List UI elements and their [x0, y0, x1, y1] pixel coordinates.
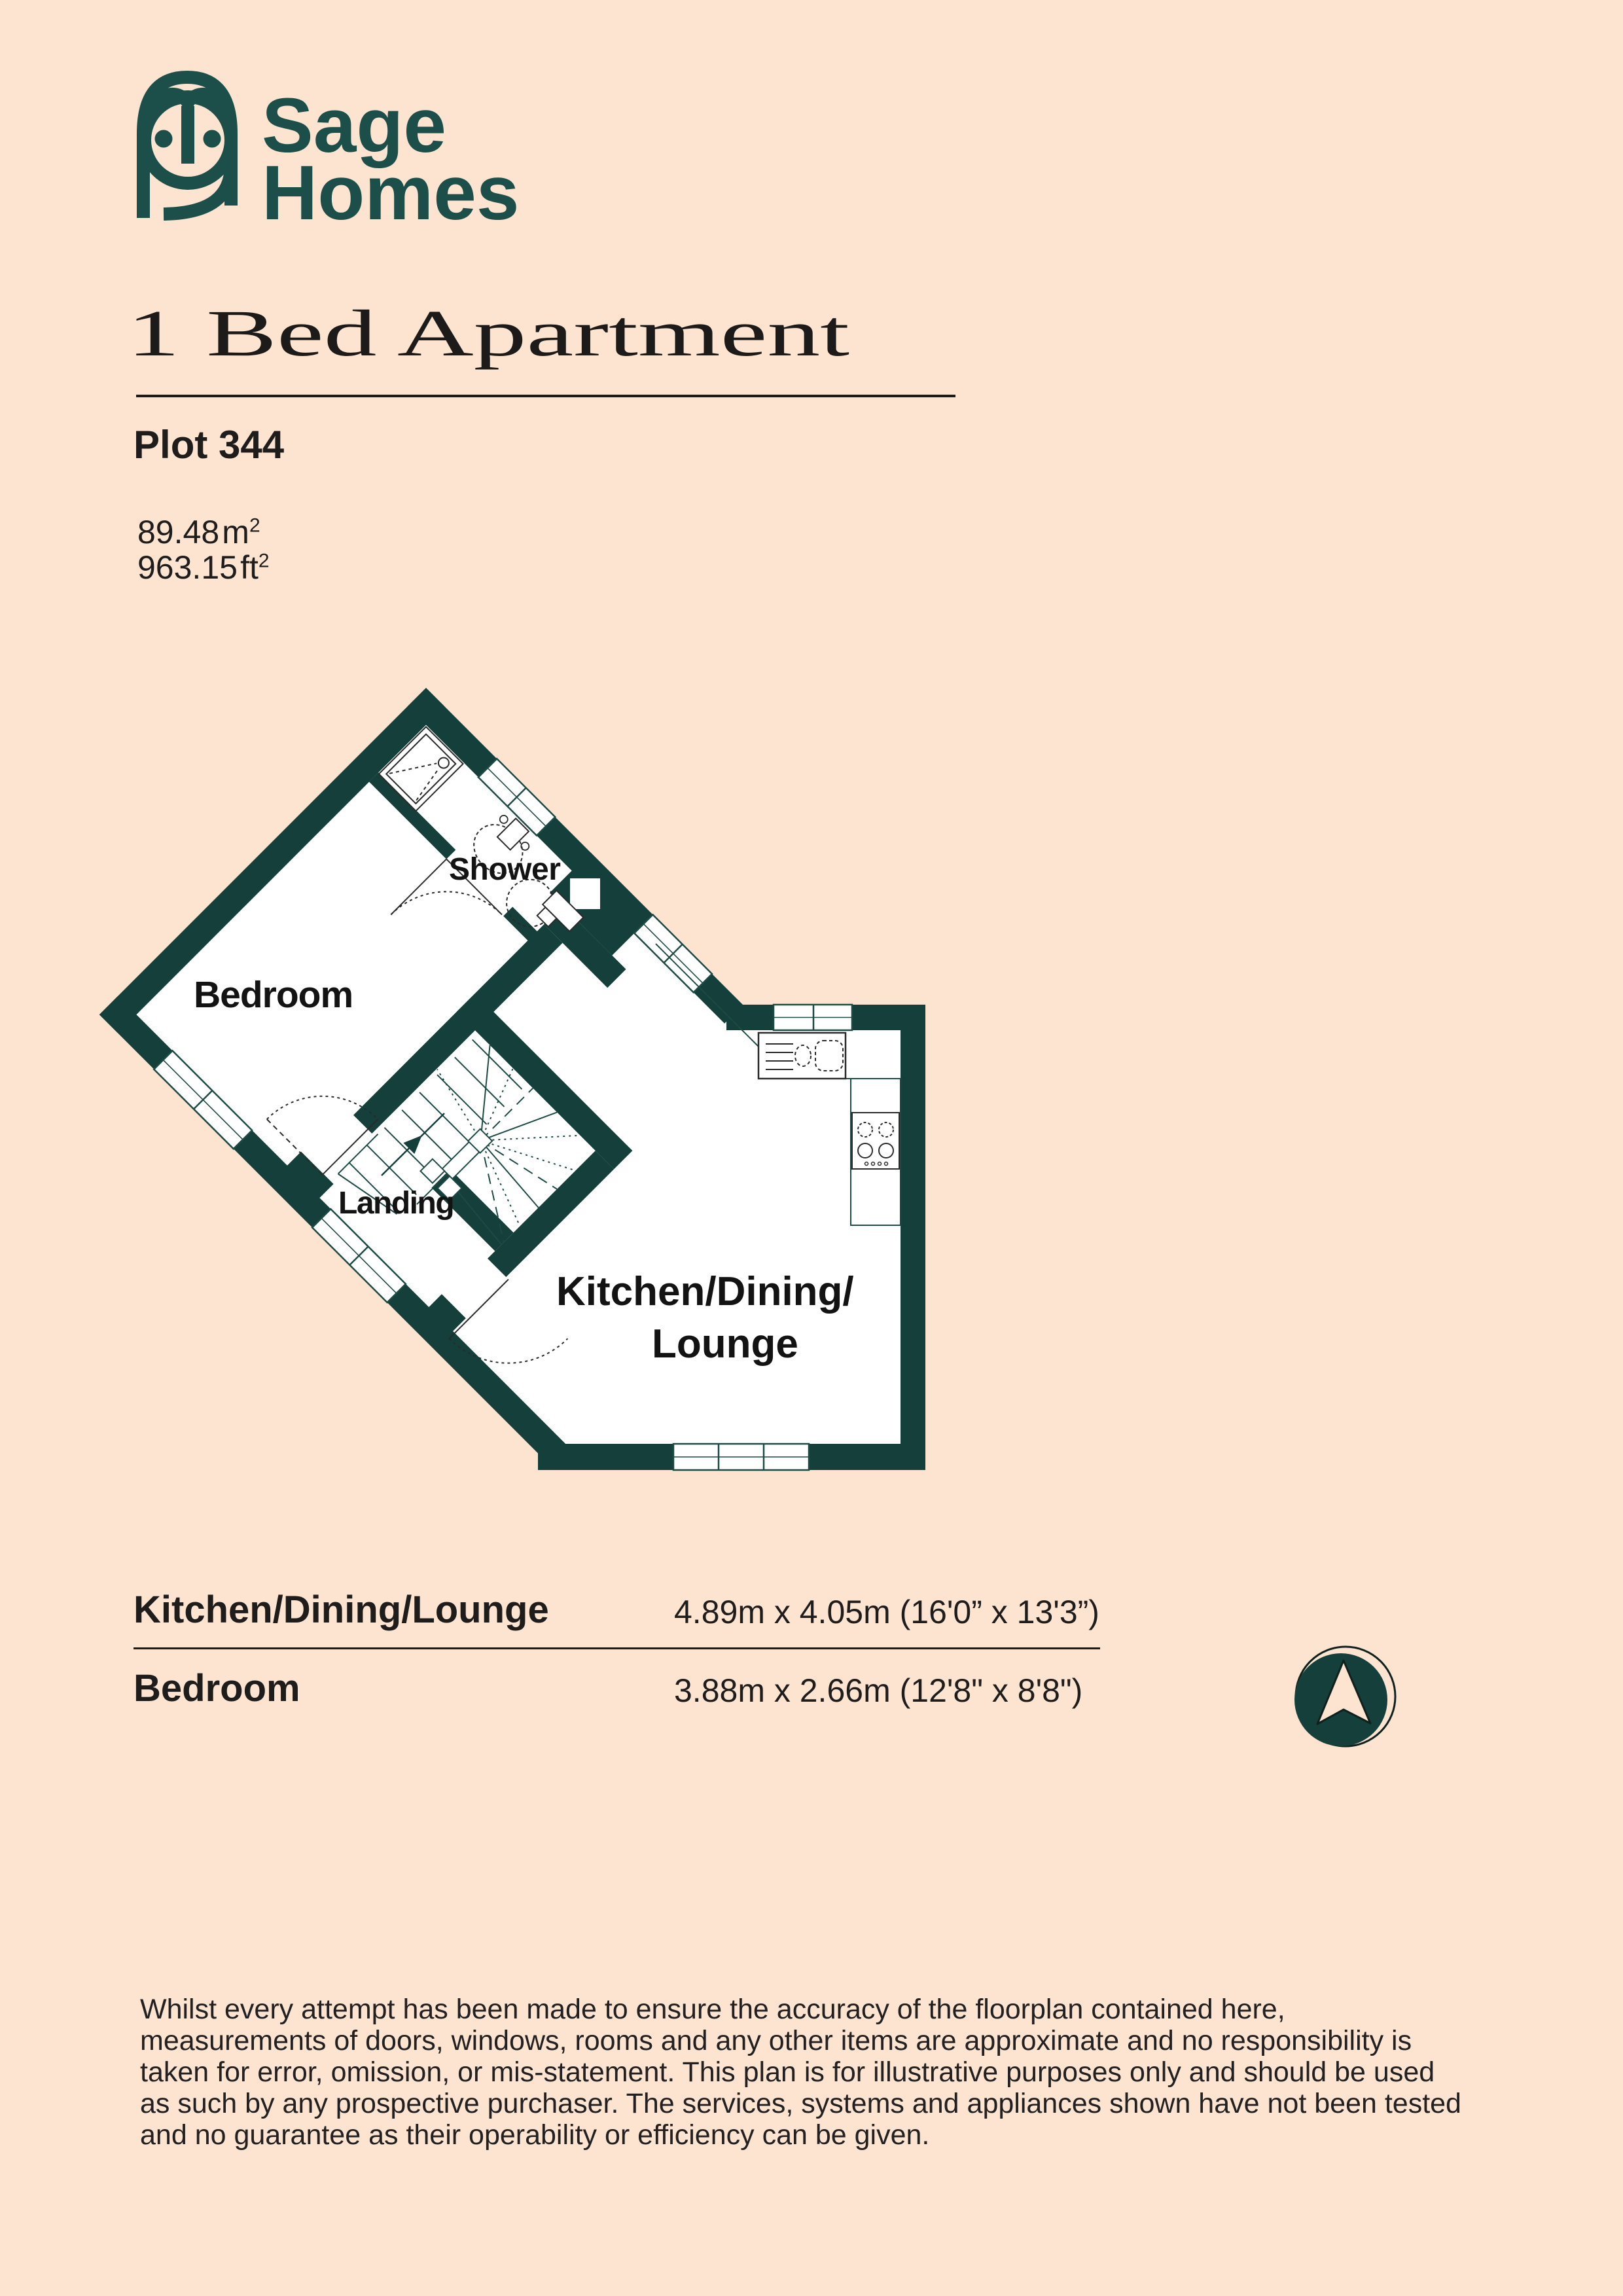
svg-text:Homes: Homes — [262, 150, 519, 236]
